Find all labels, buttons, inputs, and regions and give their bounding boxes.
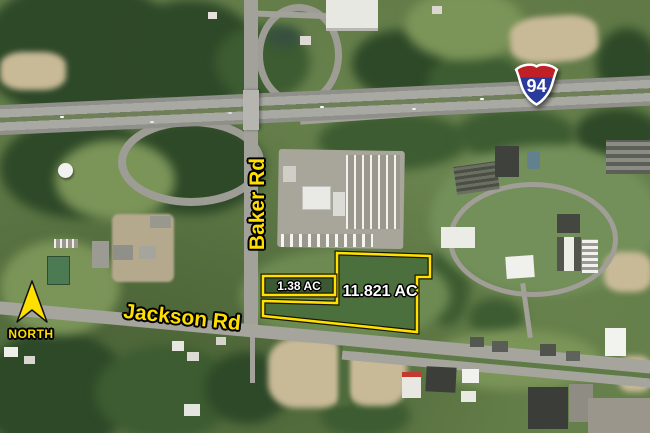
truck-parking-row-south (281, 234, 373, 247)
parcel-small-area-label: 1.38 AC (277, 279, 321, 293)
house-dark (540, 344, 556, 356)
farm-field (268, 338, 348, 408)
parcel-large-area-label: 11.821 AC (342, 283, 417, 301)
dark-building (557, 214, 580, 233)
interstate-route-number: 94 (513, 76, 560, 97)
baker-rd-label: Baker Rd (246, 158, 270, 250)
dark-building (495, 146, 519, 177)
white-building-large (505, 255, 534, 279)
yard-building (139, 246, 156, 259)
truck-row-west (54, 239, 78, 248)
vehicle (320, 106, 324, 108)
parking-lot-southeast (588, 398, 650, 433)
vehicle (228, 112, 232, 114)
white-barn (461, 391, 476, 402)
highway-ramp-loop-west (118, 118, 264, 206)
white-row-building (582, 239, 598, 273)
house (216, 337, 226, 345)
north-label: NORTH (8, 327, 53, 341)
aerial-map: 1.38 AC 11.821 AC Baker Rd Jackson Rd 94… (0, 0, 650, 433)
white-l-building (441, 227, 475, 248)
pool (527, 151, 540, 169)
truck-parking-rows (346, 155, 400, 229)
house (172, 341, 184, 351)
vehicle (412, 108, 416, 110)
warehouse-large (528, 387, 568, 429)
small-structure (432, 6, 442, 14)
warehouse-north (326, 0, 378, 31)
house (24, 356, 35, 364)
farm-field (509, 13, 600, 65)
vehicle (480, 98, 484, 100)
barn-building (92, 241, 109, 268)
yard-building (150, 216, 171, 228)
fuel-canopy (333, 192, 345, 216)
vehicle (60, 116, 64, 118)
white-tall-building (605, 328, 626, 356)
restaurant-building (402, 372, 421, 398)
house-dark (470, 337, 484, 347)
water-tower (58, 163, 73, 178)
shed (184, 404, 200, 416)
apartment-rows (606, 140, 650, 174)
farm-field (0, 52, 66, 90)
house-dark (566, 351, 580, 361)
vehicle (150, 121, 154, 123)
north-arrow-icon (14, 280, 50, 326)
fuel-canopy-small (283, 166, 296, 182)
dark-white-building (557, 237, 581, 271)
ribbed-building (453, 161, 499, 195)
truck-stop-building (302, 186, 331, 210)
green-roof-building (47, 256, 70, 285)
white-barn (462, 369, 479, 383)
interstate-94-shield: 94 (513, 63, 560, 106)
house (187, 352, 199, 361)
small-structure (300, 36, 311, 45)
house (4, 347, 18, 357)
dark-strip-building (425, 366, 456, 393)
baker-rd-overpass (243, 90, 259, 130)
small-structure (208, 12, 217, 19)
house-dark (492, 341, 508, 352)
yard-building (113, 245, 133, 260)
